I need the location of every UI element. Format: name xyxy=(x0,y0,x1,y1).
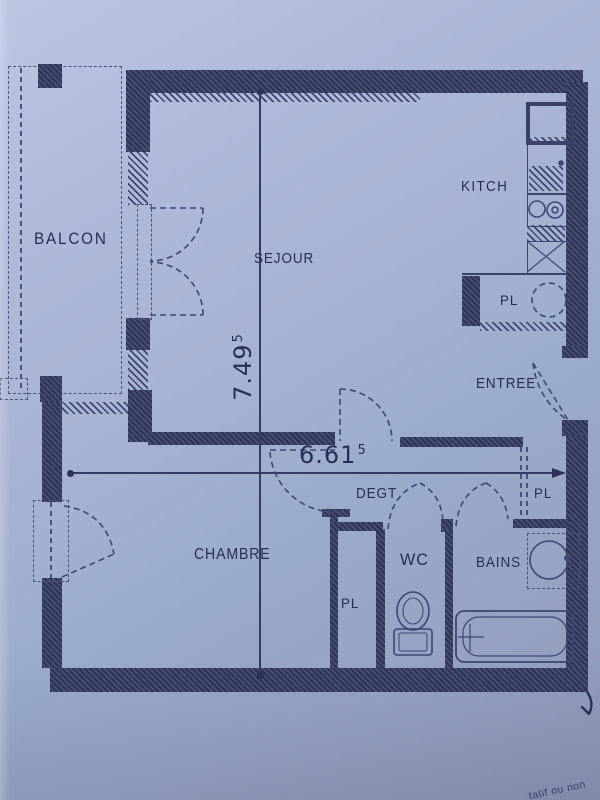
balcony-pillar-bottom xyxy=(40,376,62,402)
room-label-chambre: CHAMBRE xyxy=(194,546,271,564)
bathtub-faucet xyxy=(458,624,484,652)
wall-closet-wc xyxy=(376,529,385,668)
wall-entree-south xyxy=(400,437,523,447)
chambre-window-leaf xyxy=(62,554,114,577)
wall-entry-closet-bottom xyxy=(513,519,570,528)
margin-note-fragment: tatif ou non xyxy=(528,772,600,800)
dimension-line-horizontal xyxy=(70,472,558,474)
closet-label-kitchen-pl: PL xyxy=(500,292,518,308)
entry-door-stub-bottom xyxy=(562,420,588,436)
wall-sejour-west-block xyxy=(126,318,150,350)
hatch-kitchen-closet-bottom xyxy=(480,322,566,331)
dimension-dot-bottom xyxy=(257,672,264,679)
room-label-entree: ENTREE xyxy=(476,375,536,392)
wall-wc-bains xyxy=(445,529,453,668)
dimension-vertical-sup: 5 xyxy=(231,333,246,342)
dimension-vertical-value: 7.49 xyxy=(229,343,257,400)
stove-symbol xyxy=(527,193,567,227)
floorplan-photo: BALCON SEJOUR KITCH PL ENTREE DEGT PL CH… xyxy=(0,0,600,800)
wall-sejour-west-top xyxy=(126,70,150,152)
sink-drainer-hatch xyxy=(529,166,563,191)
room-label-degt: DEGT xyxy=(356,485,397,502)
hob-cross-symbol xyxy=(527,241,567,274)
washbasin-counter xyxy=(527,533,580,589)
room-label-kitchen: KITCH xyxy=(461,178,508,195)
wc-door-arc-right xyxy=(420,483,443,521)
dimension-arrow-right xyxy=(552,468,566,478)
bains-door-arc-right xyxy=(486,483,508,519)
wall-bottom xyxy=(50,668,588,692)
french-door-frame xyxy=(137,204,152,320)
entry-closet-partition-line1 xyxy=(520,447,522,519)
wall-left-upper xyxy=(42,386,62,502)
hatch-chambre-north xyxy=(60,402,128,414)
french-door-arc-bottom xyxy=(150,262,203,315)
dimension-horizontal-sup: 5 xyxy=(357,443,366,458)
sejour-door-arc xyxy=(340,389,392,441)
entry-door-arc xyxy=(533,363,566,419)
wall-kitchen-closet-left xyxy=(462,276,480,326)
toilet-tank xyxy=(394,629,432,655)
dimension-dot-left xyxy=(67,470,74,477)
dimension-vertical-label: 7.495 xyxy=(229,317,263,417)
bains-door-arc-left xyxy=(456,483,486,526)
toilet-tank-inner xyxy=(399,633,427,651)
wall-left-lower xyxy=(42,578,62,668)
room-label-wc: WC xyxy=(400,550,429,570)
worktop-hatch xyxy=(527,225,565,241)
wall-top xyxy=(128,70,583,93)
dimension-dot-top xyxy=(257,88,264,95)
bathtub-inner xyxy=(463,617,567,656)
chambre-window-arc xyxy=(64,506,114,554)
toilet-bowl xyxy=(397,592,429,630)
room-label-balcon: BALCON xyxy=(34,229,108,249)
hatch-sejour-west-window xyxy=(128,152,148,205)
entry-door-stub-top xyxy=(562,346,588,358)
closet-label-entry-pl: PL xyxy=(534,485,552,501)
toilet-bowl-inner xyxy=(403,598,423,624)
chambre-window-inner-line xyxy=(50,502,52,578)
balcony-corner-detail xyxy=(0,378,28,400)
french-door-arc-top xyxy=(150,208,203,261)
closet-label-chambre-pl: PL xyxy=(341,595,359,611)
hatch-sejour-west-lower xyxy=(128,350,148,390)
bathtub-symbol xyxy=(456,611,573,662)
dimension-horizontal-value: 6.61 xyxy=(299,441,356,469)
room-label-bains: BAINS xyxy=(476,554,521,571)
wall-chambre-closet-left xyxy=(330,509,338,668)
entry-door-leaf xyxy=(533,363,568,420)
hatch-top-inner xyxy=(150,93,420,102)
balcony-railing-inner-line xyxy=(20,68,22,390)
entry-closet-partition-line2 xyxy=(526,447,528,519)
balcony-pillar-top xyxy=(38,64,62,88)
dimension-horizontal-label: 6.615 xyxy=(299,441,367,469)
water-heater-symbol xyxy=(532,283,566,317)
room-label-sejour: SEJOUR xyxy=(254,250,314,267)
